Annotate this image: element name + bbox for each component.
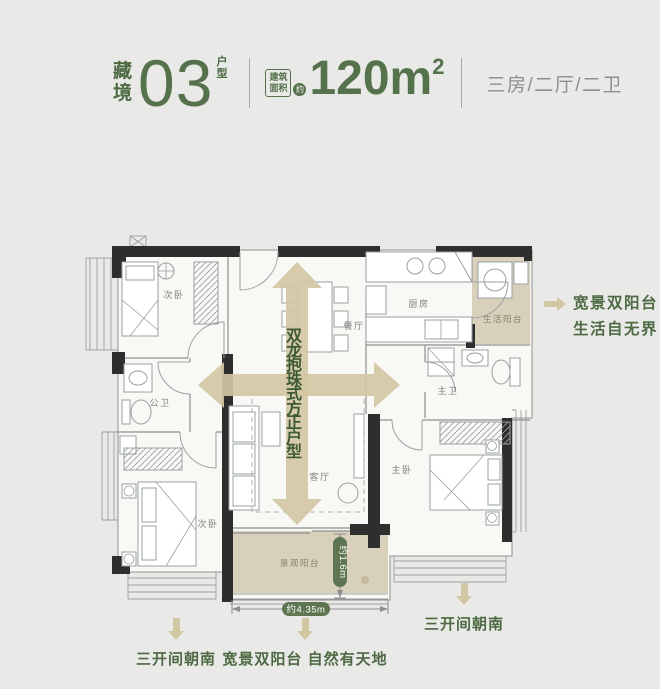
callout-right-text: 宽景双阳台 生活自无界 bbox=[573, 291, 658, 343]
right-arrow-icon bbox=[544, 297, 566, 311]
callout-right: 宽景双阳台 生活自无界 bbox=[544, 291, 658, 343]
floor-plan-drawing: 约4.35m 约1.6m 次卧 公卫 次卧 餐厅 客厅 厨房 生活阳台 主卫 主… bbox=[0, 0, 660, 689]
room-label-dining: 餐厅 bbox=[343, 320, 364, 331]
room-label-living: 客厅 bbox=[309, 471, 330, 482]
room-label-balcony-service: 生活阳台 bbox=[483, 314, 523, 324]
down-arrow-icon bbox=[404, 583, 524, 605]
vertical-slogan: 双龙抱珠式方正户型 bbox=[284, 330, 304, 461]
room-label-bedroom-top: 次卧 bbox=[163, 289, 184, 300]
room-label-bath-public: 公卫 bbox=[149, 398, 170, 408]
room-label-kitchen: 厨房 bbox=[408, 298, 429, 309]
caption-bottom-center: 宽景双阳台 自然有天地 bbox=[212, 618, 398, 669]
room-label-bedroom-bottom: 次卧 bbox=[197, 518, 218, 529]
width-dimension: 约4.35m bbox=[287, 604, 326, 616]
depth-dimension: 约1.6m bbox=[337, 545, 349, 578]
room-label-bedroom-master: 主卧 bbox=[391, 464, 412, 475]
room-label-bath-master: 主卫 bbox=[437, 385, 458, 396]
down-arrow-icon bbox=[212, 618, 398, 640]
floorplan-page: { "header": { "brand_char1": "藏", "brand… bbox=[0, 0, 660, 689]
caption-bottom-right: 三开间朝南 bbox=[404, 583, 524, 634]
room-label-balcony-view: 景观阳台 bbox=[280, 558, 320, 568]
